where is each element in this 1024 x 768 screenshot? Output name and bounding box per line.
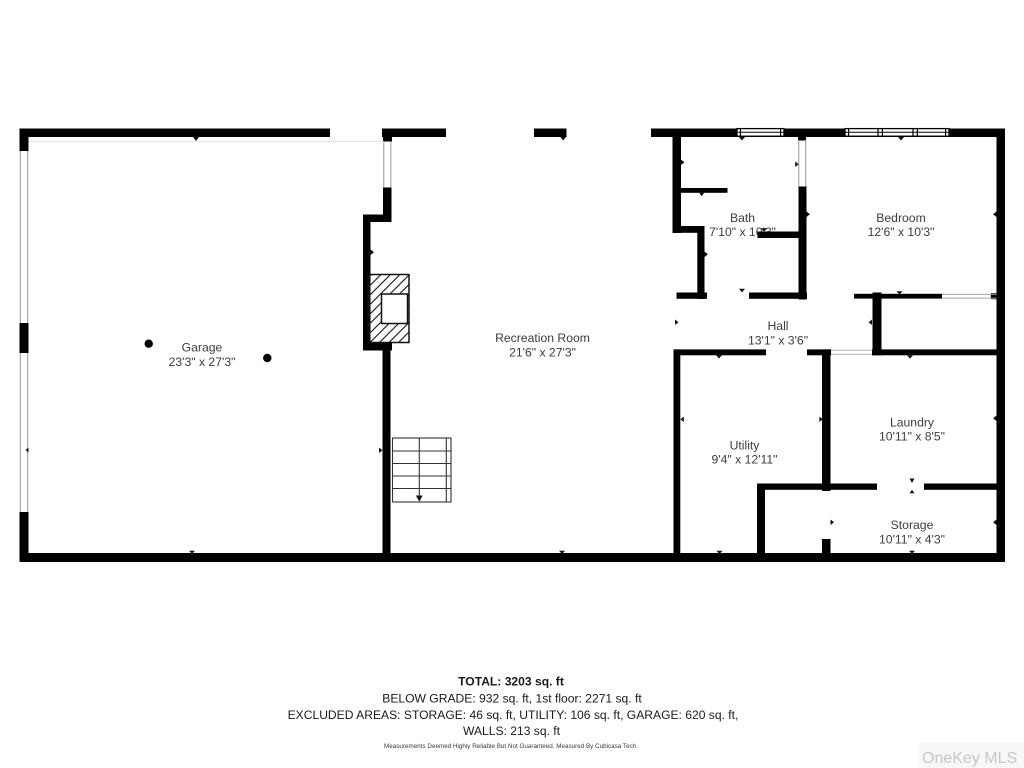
svg-text:EXCLUDED AREAS: STORAGE: 46 sq: EXCLUDED AREAS: STORAGE: 46 sq. ft, UTIL… xyxy=(288,708,739,722)
svg-text:9'4" x 12'11": 9'4" x 12'11" xyxy=(712,453,778,467)
svg-text:Storage: Storage xyxy=(891,518,934,532)
svg-text:10'11" x 8'5": 10'11" x 8'5" xyxy=(879,430,945,444)
svg-text:Measurements Deemed Highly Rel: Measurements Deemed Highly Reliable But … xyxy=(384,743,638,750)
svg-text:Bath: Bath xyxy=(730,211,755,225)
svg-text:12'6" x 10'3": 12'6" x 10'3" xyxy=(868,225,935,239)
svg-text:10'11" x 4'3": 10'11" x 4'3" xyxy=(879,533,945,547)
svg-text:TOTAL: 3203 sq. ft: TOTAL: 3203 sq. ft xyxy=(458,675,564,689)
svg-text:OneKey MLS: OneKey MLS xyxy=(922,750,1017,767)
svg-text:21'6" x 27'3": 21'6" x 27'3" xyxy=(509,346,576,360)
svg-text:Garage: Garage xyxy=(182,341,223,355)
svg-text:Laundry: Laundry xyxy=(890,416,935,430)
svg-text:WALLS: 213 sq. ft: WALLS: 213 sq. ft xyxy=(463,724,561,738)
svg-text:13'1" x 3'6": 13'1" x 3'6" xyxy=(748,334,808,348)
svg-text:Hall: Hall xyxy=(768,319,789,333)
svg-text:Bedroom: Bedroom xyxy=(876,211,925,225)
svg-text:Utility: Utility xyxy=(730,439,761,453)
svg-text:23'3" x 27'3": 23'3" x 27'3" xyxy=(169,355,236,369)
svg-text:BELOW GRADE: 932 sq. ft, 1st f: BELOW GRADE: 932 sq. ft, 1st floor: 2271… xyxy=(382,692,642,706)
svg-text:Recreation Room: Recreation Room xyxy=(495,331,590,345)
